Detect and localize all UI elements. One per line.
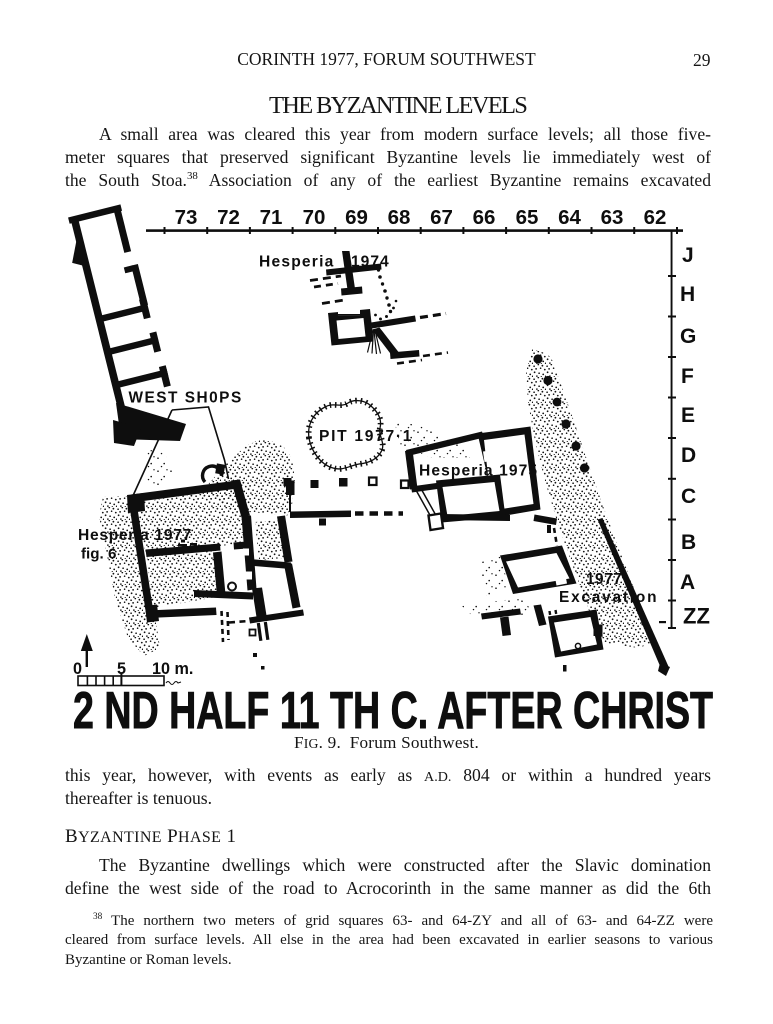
svg-text:ZZ: ZZ xyxy=(683,604,710,629)
svg-text:fig. 6: fig. 6 xyxy=(81,546,116,563)
svg-text:Hesperia: Hesperia xyxy=(259,254,334,271)
svg-text:D: D xyxy=(681,444,696,467)
svg-text:Excavation: Excavation xyxy=(559,589,658,606)
svg-text:67: 67 xyxy=(430,206,453,229)
svg-text:A: A xyxy=(680,571,695,594)
svg-text:70: 70 xyxy=(303,206,326,229)
svg-text:PIT 1977·1: PIT 1977·1 xyxy=(319,428,413,445)
svg-text:73: 73 xyxy=(175,206,198,229)
svg-text:Hesperia 1977: Hesperia 1977 xyxy=(78,527,192,544)
svg-text:66: 66 xyxy=(473,206,496,229)
svg-text:J: J xyxy=(682,244,694,267)
svg-text:Hesperia 1975: Hesperia 1975 xyxy=(419,463,538,480)
svg-text:H: H xyxy=(680,283,695,306)
svg-text:C: C xyxy=(681,485,696,508)
svg-text:1974: 1974 xyxy=(351,254,390,271)
svg-text:68: 68 xyxy=(388,206,411,229)
svg-text:WEST SH0PS: WEST SH0PS xyxy=(129,390,243,407)
svg-text:72: 72 xyxy=(217,206,240,229)
svg-text:1977: 1977 xyxy=(586,571,622,588)
svg-text:B: B xyxy=(681,531,696,554)
svg-text:71: 71 xyxy=(260,206,283,229)
svg-text:69: 69 xyxy=(345,206,368,229)
svg-text:G: G xyxy=(680,325,696,348)
svg-text:65: 65 xyxy=(516,206,539,229)
svg-text:E: E xyxy=(681,404,695,427)
svg-text:F: F xyxy=(681,365,694,388)
svg-text:2 ND HALF 11 TH C. AFTER CHRIS: 2 ND HALF 11 TH C. AFTER CHRIST xyxy=(73,682,713,740)
svg-text:64: 64 xyxy=(558,206,581,229)
svg-text:63: 63 xyxy=(601,206,624,229)
svg-text:62: 62 xyxy=(644,206,667,229)
